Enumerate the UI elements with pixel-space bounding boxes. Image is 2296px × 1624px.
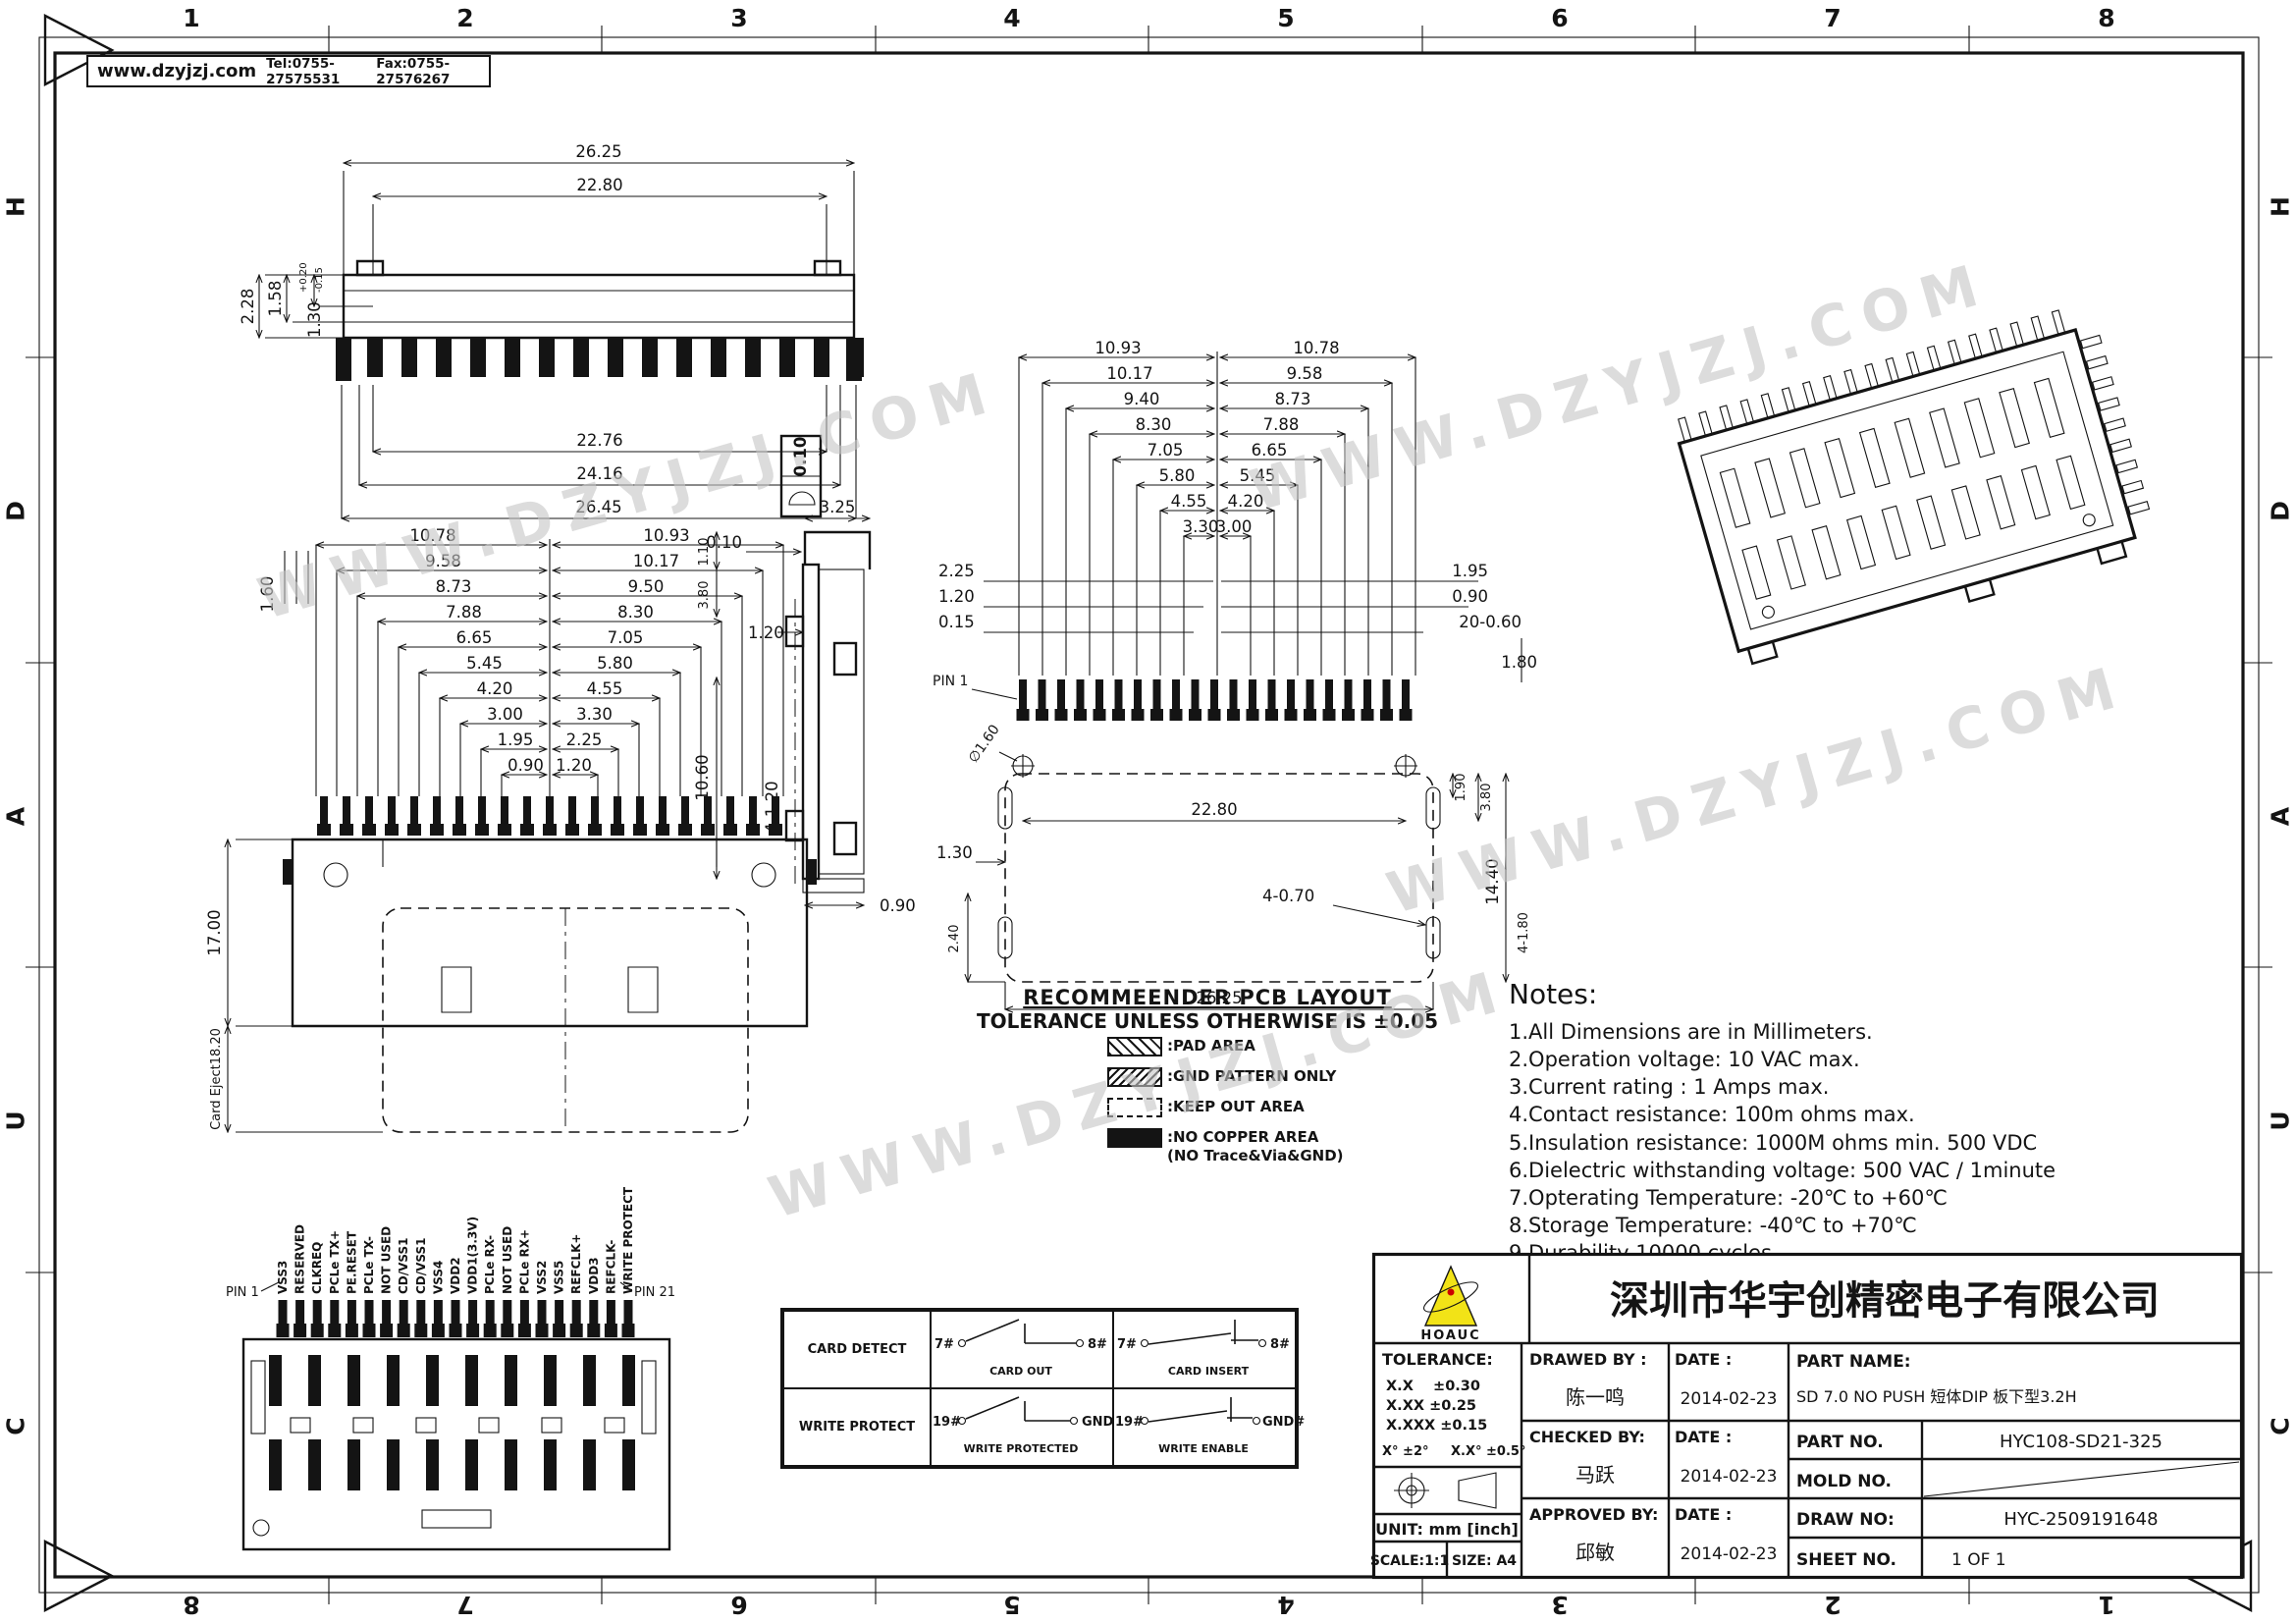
pin-label: PCLe TX+ xyxy=(328,1230,342,1294)
contact-slot xyxy=(622,1439,635,1490)
side-view: 0.10 3.25 0.10 1.10 3.80 1.20 10.60 4-1.… xyxy=(687,422,923,923)
pin xyxy=(400,1300,408,1326)
pin xyxy=(501,796,508,826)
pin xyxy=(486,1300,495,1326)
dim-label: 1.20 xyxy=(556,756,592,775)
iso-slot xyxy=(2034,378,2063,437)
tolerance-label: TOLERANCE: xyxy=(1382,1350,1493,1369)
legend-label: :GND PATTERN ONLY xyxy=(1167,1067,1336,1086)
iso-pin xyxy=(2093,377,2113,390)
iso-pin xyxy=(1803,382,1816,406)
pin xyxy=(1134,679,1142,711)
switch-from: 7# xyxy=(934,1337,954,1352)
iso-slot xyxy=(1860,428,1890,487)
contact-slot xyxy=(544,1355,557,1406)
pin-label: PCLe RX+ xyxy=(517,1229,531,1294)
logo-text: HOAUC xyxy=(1420,1328,1480,1343)
pin xyxy=(1153,679,1161,711)
contact-slot xyxy=(347,1355,360,1406)
dim-label: 0.90 xyxy=(507,756,544,775)
pin-foot xyxy=(328,1324,341,1337)
contact-slot xyxy=(505,1355,517,1406)
unit-label: UNIT: mm [inch] xyxy=(1375,1520,1519,1539)
contact-slot xyxy=(426,1439,439,1490)
pin-foot xyxy=(1304,709,1316,721)
pcb-caption: RECOMMEENDER PCB LAYOUT TOLERANCE UNLESS… xyxy=(928,986,1487,1033)
front-details xyxy=(383,839,717,1012)
draw-no-label: DRAW NO: xyxy=(1796,1510,1895,1530)
drawing-sheet: 1 2 3 4 5 6 7 8 8 7 6 5 4 3 2 1 H D A U … xyxy=(0,0,2296,1624)
pin-label: VDD3 xyxy=(587,1257,601,1294)
ext-lines xyxy=(1019,352,1415,676)
iso-pin xyxy=(1949,340,1961,364)
iso-pin xyxy=(1761,394,1774,418)
pin-label: PCLe TX- xyxy=(362,1236,376,1294)
dim-label: 26.45 xyxy=(575,498,621,516)
pin-label: CLKREQ xyxy=(310,1242,324,1294)
pin xyxy=(523,796,531,826)
top-view-body-lines xyxy=(344,291,854,322)
pin-foot xyxy=(317,824,331,836)
pin xyxy=(614,796,621,826)
bottom-hole xyxy=(253,1520,269,1536)
dim-label: 4.55 xyxy=(1171,492,1207,511)
part-no-value: HYC108-SD21-325 xyxy=(2000,1432,2163,1452)
dim-label: 1.90 xyxy=(1454,774,1468,802)
pin-label: VSS5 xyxy=(553,1261,566,1294)
mold-no-label: MOLD NO. xyxy=(1796,1472,1892,1491)
pin xyxy=(568,796,576,826)
fcf-value: 0.10 xyxy=(791,437,810,477)
switch-to: 8# xyxy=(1270,1337,1290,1352)
switch-caption: CARD INSERT xyxy=(1168,1365,1250,1378)
pin-label: WRITE PROTECT xyxy=(621,1186,635,1294)
pin-foot xyxy=(380,1324,393,1337)
iso-slot xyxy=(1917,496,1946,549)
part-name-label: PART NAME: xyxy=(1796,1352,1911,1372)
contact-slot xyxy=(622,1355,635,1406)
dim-label: 0.90 xyxy=(1452,587,1488,606)
pin-foot xyxy=(570,1324,583,1337)
pin xyxy=(436,338,452,377)
leader xyxy=(1333,905,1425,925)
pin xyxy=(1192,679,1200,711)
drawed-by-label: DRAWED BY : xyxy=(1529,1350,1647,1369)
pin xyxy=(1268,679,1276,711)
top-view-body xyxy=(344,275,854,338)
pcb-title: RECOMMEENDER PCB LAYOUT xyxy=(928,986,1487,1009)
iso-slot xyxy=(2000,389,2029,448)
pin xyxy=(452,1300,460,1326)
switch-from: 7# xyxy=(1117,1337,1137,1352)
pin-foot xyxy=(553,1324,565,1337)
pin-foot xyxy=(1036,709,1048,721)
hole-dia-label: ∅1.60 xyxy=(966,722,1003,766)
contact-slot xyxy=(308,1355,321,1406)
pin xyxy=(295,1300,304,1326)
pin xyxy=(711,338,726,377)
pin xyxy=(320,796,328,826)
pin-foot xyxy=(1170,709,1183,721)
iso-pin xyxy=(1824,376,1837,401)
dim-label: 2.25 xyxy=(938,562,975,580)
bottom-slot xyxy=(642,1361,656,1434)
dim-label: 1.60 xyxy=(258,576,277,613)
dim-label: 8.30 xyxy=(617,603,654,622)
note-item: 2.Operation voltage: 10 VAC max. xyxy=(1509,1046,2237,1073)
logo-dot-icon xyxy=(1448,1289,1455,1296)
title-block: HOAUC 深圳市华宇创精密电子有限公司 TOLERANCE: X.X ±0.3… xyxy=(1372,1253,2243,1579)
dim-label: 1.20 xyxy=(938,587,975,606)
pin-foot xyxy=(475,824,489,836)
iso-pin xyxy=(2110,439,2131,452)
dim-label: 17.00 xyxy=(205,909,224,955)
pin xyxy=(388,796,396,826)
contact-slot xyxy=(465,1355,478,1406)
pin-foot xyxy=(346,1324,358,1337)
dim-label: 8.73 xyxy=(1275,390,1311,408)
pin-foot xyxy=(1227,709,1240,721)
pin-label: RESERVED xyxy=(294,1224,307,1294)
contact-slot xyxy=(426,1355,439,1406)
pin-foot xyxy=(520,824,534,836)
pin-foot xyxy=(294,1324,306,1337)
pin-label: REFCLK+ xyxy=(569,1234,583,1294)
pin-label: PCLe RX- xyxy=(483,1235,497,1294)
dim-label: 7.88 xyxy=(446,603,482,622)
pin xyxy=(1172,679,1180,711)
dim-label: 3.30 xyxy=(576,705,613,724)
tolerance-line: X.X ±0.30 xyxy=(1386,1379,1480,1394)
pin xyxy=(848,338,864,377)
note-item: 1.All Dimensions are in Millimeters. xyxy=(1509,1018,2237,1046)
pin xyxy=(1402,679,1410,711)
pin-foot xyxy=(1074,709,1087,721)
dim-label: 6.65 xyxy=(1252,441,1288,460)
dim-label: 10.93 xyxy=(643,526,689,545)
switch-cell-write-enable: 19# GND# WRITE ENABLE xyxy=(1113,1388,1296,1466)
side-wall xyxy=(803,565,819,879)
pin-foot xyxy=(407,824,421,836)
bottom-slot xyxy=(251,1361,265,1434)
date-label: DATE : xyxy=(1675,1350,1732,1369)
pin xyxy=(365,1300,374,1326)
contact-slot xyxy=(544,1439,557,1490)
iso-slot xyxy=(1789,449,1819,508)
pin xyxy=(1077,679,1085,711)
iso-slot xyxy=(1882,506,1910,559)
pin-label: PE.RESET xyxy=(345,1230,358,1294)
pin xyxy=(478,796,486,826)
iso-slot xyxy=(1825,439,1854,498)
dim-label: 10.17 xyxy=(633,552,679,570)
dim-label: 10.60 xyxy=(693,754,712,800)
dim-label: 4-0.70 xyxy=(1262,887,1314,905)
keep-out-swatch-icon xyxy=(1107,1098,1162,1117)
pin xyxy=(659,796,667,826)
iso-slot xyxy=(1812,526,1841,579)
switch-cell-card-out: 7# 8# CARD OUT xyxy=(931,1311,1113,1388)
legend-item: :NO COPPER AREA (NO Trace&Via&GND) xyxy=(1107,1128,1344,1165)
projection-cross xyxy=(1394,1473,1429,1508)
iso-body xyxy=(1673,301,2161,667)
dim-label: 1.58 xyxy=(266,281,285,317)
pin-label: NOT USED xyxy=(501,1226,514,1294)
iso-foot xyxy=(1965,579,1994,602)
iso-pin xyxy=(1865,364,1878,389)
website-text: www.dzyjzj.com xyxy=(97,61,256,81)
detail-slot xyxy=(542,1418,561,1433)
drawed-date: 2014-02-23 xyxy=(1681,1389,1778,1409)
dim-tol-plus: +0.20 xyxy=(298,262,309,293)
pin xyxy=(347,1300,356,1326)
iso-slot xyxy=(1778,536,1806,589)
note-item: 4.Contact resistance: 100m ohms max. xyxy=(1509,1101,2237,1128)
contact-slot xyxy=(583,1355,596,1406)
iso-pin xyxy=(1906,352,1919,376)
pin-foot xyxy=(518,1324,531,1337)
iso-pin xyxy=(1720,406,1733,430)
pin-foot xyxy=(1362,709,1374,721)
dim-label: 8.30 xyxy=(1136,415,1172,434)
scale-label: SCALE:1:1 xyxy=(1370,1553,1449,1569)
dim-label: 10.93 xyxy=(1095,339,1141,357)
gnd-pattern-swatch-icon xyxy=(1107,1067,1162,1087)
pin xyxy=(470,338,486,377)
tolerance-line: X.XXX ±0.15 xyxy=(1386,1418,1487,1434)
pin xyxy=(539,338,555,377)
pin-label: NOT USED xyxy=(380,1226,394,1294)
pin-foot xyxy=(1017,709,1030,721)
switch-from: 19# xyxy=(933,1415,961,1430)
dim-label: 5.80 xyxy=(1159,466,1196,485)
pin xyxy=(416,1300,425,1326)
checked-by-label: CHECKED BY: xyxy=(1529,1428,1645,1446)
contact-slot xyxy=(269,1439,282,1490)
dim-label: 0.90 xyxy=(880,896,916,915)
pin xyxy=(1249,679,1256,711)
pin xyxy=(520,1300,529,1326)
pin xyxy=(572,1300,581,1326)
pin xyxy=(1115,679,1123,711)
note-item: 8.Storage Temperature: -40℃ to +70℃ xyxy=(1509,1212,2237,1239)
pin-label: VSS4 xyxy=(431,1261,445,1294)
dim-label: 22.80 xyxy=(1191,800,1237,819)
pin xyxy=(589,1300,598,1326)
pin xyxy=(546,796,554,826)
iso-slot xyxy=(1895,418,1924,477)
dim-tol-minus: -0.15 xyxy=(314,267,325,293)
pin xyxy=(1307,679,1314,711)
pin-foot xyxy=(450,1324,462,1337)
part-name-value: SD 7.0 NO PUSH 短体DIP 板下型3.2H xyxy=(1796,1387,2077,1406)
legend-item: :KEEP OUT AREA xyxy=(1107,1098,1344,1117)
iso-pin xyxy=(2052,310,2064,335)
contact-slot xyxy=(387,1439,400,1490)
dim-label: 7.05 xyxy=(1148,441,1184,460)
switch-open-icon: 7# 8# CARD OUT xyxy=(933,1314,1111,1386)
dim-label: 9.50 xyxy=(628,577,665,596)
pin-foot xyxy=(430,824,444,836)
pin-foot xyxy=(432,1324,445,1337)
pin xyxy=(410,796,418,826)
iso-foot xyxy=(2097,541,2125,564)
pin xyxy=(434,1300,443,1326)
date-label: DATE : xyxy=(1675,1428,1732,1446)
switch-to: 8# xyxy=(1088,1337,1107,1352)
side-tab xyxy=(283,859,293,885)
dim-label: 4.55 xyxy=(587,679,623,698)
pin xyxy=(503,1300,511,1326)
pin-foot xyxy=(611,824,624,836)
dim-label: 2.28 xyxy=(239,289,257,325)
tel-text: Tel:0755-27575531 xyxy=(266,56,366,87)
switch-from: 19# xyxy=(1115,1415,1144,1430)
pin-foot xyxy=(501,1324,513,1337)
pin1-callout: PIN 1 xyxy=(933,674,968,689)
dim-label: 7.88 xyxy=(1263,415,1300,434)
dim-label: 22.76 xyxy=(576,431,622,450)
mold-no-strike xyxy=(1924,1462,2239,1496)
contact-slot xyxy=(465,1439,478,1490)
side-slot xyxy=(834,643,856,675)
pin-foot xyxy=(1112,709,1125,721)
pcb-tolerance-note: TOLERANCE UNLESS OTHERWISE IS ±0.05 xyxy=(928,1009,1487,1033)
dim-label: 3.00 xyxy=(487,705,523,724)
pin-foot xyxy=(414,1324,427,1337)
dim-label: 4.20 xyxy=(477,679,513,698)
contact-slot xyxy=(583,1439,596,1490)
switch-cell-card-insert: 7# 8# CARD INSERT xyxy=(1113,1311,1296,1388)
pin xyxy=(624,1300,633,1326)
pin xyxy=(1095,679,1103,711)
tolerance-line: X° ±2° xyxy=(1382,1444,1429,1459)
sheet-no-label: SHEET NO. xyxy=(1796,1550,1896,1570)
iso-slot xyxy=(1964,399,1994,458)
pin-foot xyxy=(588,824,602,836)
contact-slot xyxy=(505,1439,517,1490)
iso-slot xyxy=(2021,465,2050,518)
iso-pin xyxy=(2099,398,2119,410)
dim-label: 10.78 xyxy=(409,526,455,545)
iso-hole xyxy=(1761,605,1776,620)
note-item: 5.Insulation resistance: 1000M ohms min.… xyxy=(1509,1129,2237,1157)
dim-label: 2.25 xyxy=(566,731,603,749)
iso-pin xyxy=(1782,388,1794,412)
projection-cone-icon xyxy=(1459,1473,1496,1508)
checked-by-name: 马跃 xyxy=(1575,1463,1615,1487)
dim-label: 10.17 xyxy=(1106,364,1152,383)
dim-label: 7.05 xyxy=(608,628,644,647)
pin-foot xyxy=(1323,709,1336,721)
pcb-layout-view: 2.25 1.20 0.15 1.95 0.90 20-0.60 1.80 PI… xyxy=(933,344,1541,1031)
iso-pin xyxy=(1679,417,1691,442)
pin-foot xyxy=(362,824,376,836)
iso-foot xyxy=(1748,641,1777,664)
pin1-callout: PIN 1 xyxy=(226,1285,259,1300)
bottom-detail xyxy=(422,1510,491,1528)
pin-foot xyxy=(1380,709,1393,721)
bottom-view: PIN 1 PIN 21 VSS3RESERVEDCLKREQPCLe TX+P… xyxy=(226,1127,687,1574)
dim-label: 1.80 xyxy=(1501,653,1537,672)
pin-foot xyxy=(1400,709,1413,721)
iso-slot xyxy=(1847,515,1876,568)
switch-closed-icon: 7# 8# CARD INSERT xyxy=(1115,1314,1294,1386)
detail-slot xyxy=(479,1418,499,1433)
pin-foot xyxy=(398,1324,410,1337)
dim-label: 5.45 xyxy=(466,654,503,673)
pin xyxy=(1039,679,1046,711)
detail-slot xyxy=(416,1418,436,1433)
iso-pin xyxy=(2128,502,2149,514)
pin-label: REFCLK- xyxy=(604,1240,617,1294)
no-copper-swatch-icon xyxy=(1107,1128,1162,1148)
pin-foot xyxy=(543,824,557,836)
side-slot xyxy=(834,823,856,854)
dim-label: 5.45 xyxy=(1240,466,1276,485)
iso-pin xyxy=(2122,480,2143,493)
dim-label: 1.95 xyxy=(1452,562,1488,580)
tolerance-line: X.XX ±0.25 xyxy=(1386,1398,1476,1414)
note-item: 6.Dielectric withstanding voltage: 500 V… xyxy=(1509,1157,2237,1184)
notes-block: Notes: 1.All Dimensions are in Millimete… xyxy=(1509,978,2237,1267)
pin-foot xyxy=(1208,709,1221,721)
pin xyxy=(538,1300,547,1326)
dim-label: 14.40 xyxy=(1483,858,1502,904)
stack-dim-lines xyxy=(984,581,1478,632)
top-view-end xyxy=(336,338,351,381)
pin-foot xyxy=(622,1324,635,1337)
dim-label: 1.95 xyxy=(498,731,534,749)
pin-foot xyxy=(363,1324,376,1337)
iso-pin xyxy=(1844,370,1857,395)
dim-label: 9.58 xyxy=(425,552,461,570)
hole-cross xyxy=(1011,754,1417,778)
pin-foot xyxy=(466,1324,479,1337)
pin-label: VSS3 xyxy=(276,1261,290,1294)
iso-slot xyxy=(1742,546,1771,599)
approved-date: 2014-02-23 xyxy=(1681,1544,1778,1564)
iso-view xyxy=(1561,236,2248,727)
iso-slot xyxy=(2056,456,2085,509)
dim-label: 5.80 xyxy=(597,654,633,673)
dim-label: Card Eject18.20 xyxy=(209,1028,224,1130)
pin xyxy=(642,338,658,377)
pin xyxy=(330,1300,339,1326)
pitch-ticks xyxy=(285,551,308,604)
dim-label: 20-0.60 xyxy=(1459,613,1522,631)
approved-by-name: 邱敏 xyxy=(1575,1541,1615,1564)
switch-row-name: WRITE PROTECT xyxy=(799,1420,915,1435)
drawed-by-name: 陈一鸣 xyxy=(1566,1385,1625,1409)
dim-label: 3.00 xyxy=(1216,517,1253,536)
dim-label: 6.65 xyxy=(456,628,493,647)
dim-label: 4.20 xyxy=(1228,492,1264,511)
iso-pin xyxy=(2031,316,2044,341)
pin xyxy=(365,796,373,826)
company-logo-icon xyxy=(1425,1267,1476,1326)
pin xyxy=(1057,679,1065,711)
pin xyxy=(1019,679,1027,711)
pin-foot xyxy=(1132,709,1145,721)
pin-foot xyxy=(1265,709,1278,721)
iso-pin xyxy=(2010,322,2023,347)
pin xyxy=(1383,679,1391,711)
pin xyxy=(313,1300,322,1326)
switch-cell-write-protected: 19# GND WRITE PROTECTED xyxy=(931,1388,1113,1466)
pin xyxy=(573,338,589,377)
iso-pin xyxy=(1699,411,1712,436)
